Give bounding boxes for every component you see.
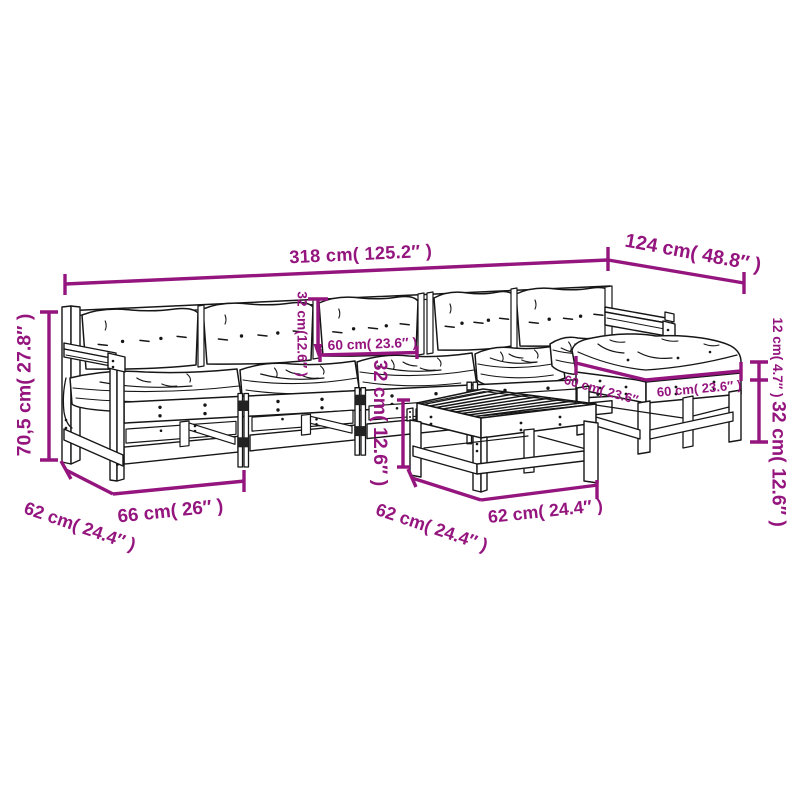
svg-text:70,5 cm( 27.8″ ): 70,5 cm( 27.8″ ) — [14, 314, 36, 457]
svg-text:12 cm( 4.7″ ): 12 cm( 4.7″ ) — [770, 317, 785, 397]
svg-text:60 cm( 23.6″ ): 60 cm( 23.6″ ) — [327, 335, 417, 353]
svg-text:32 cm( 12.6″ ): 32 cm( 12.6″ ) — [369, 360, 391, 486]
svg-text:32 cm( 12.6″ ): 32 cm( 12.6″ ) — [768, 401, 790, 527]
svg-text:32 cm(12.6″ ): 32 cm(12.6″ ) — [295, 291, 310, 377]
